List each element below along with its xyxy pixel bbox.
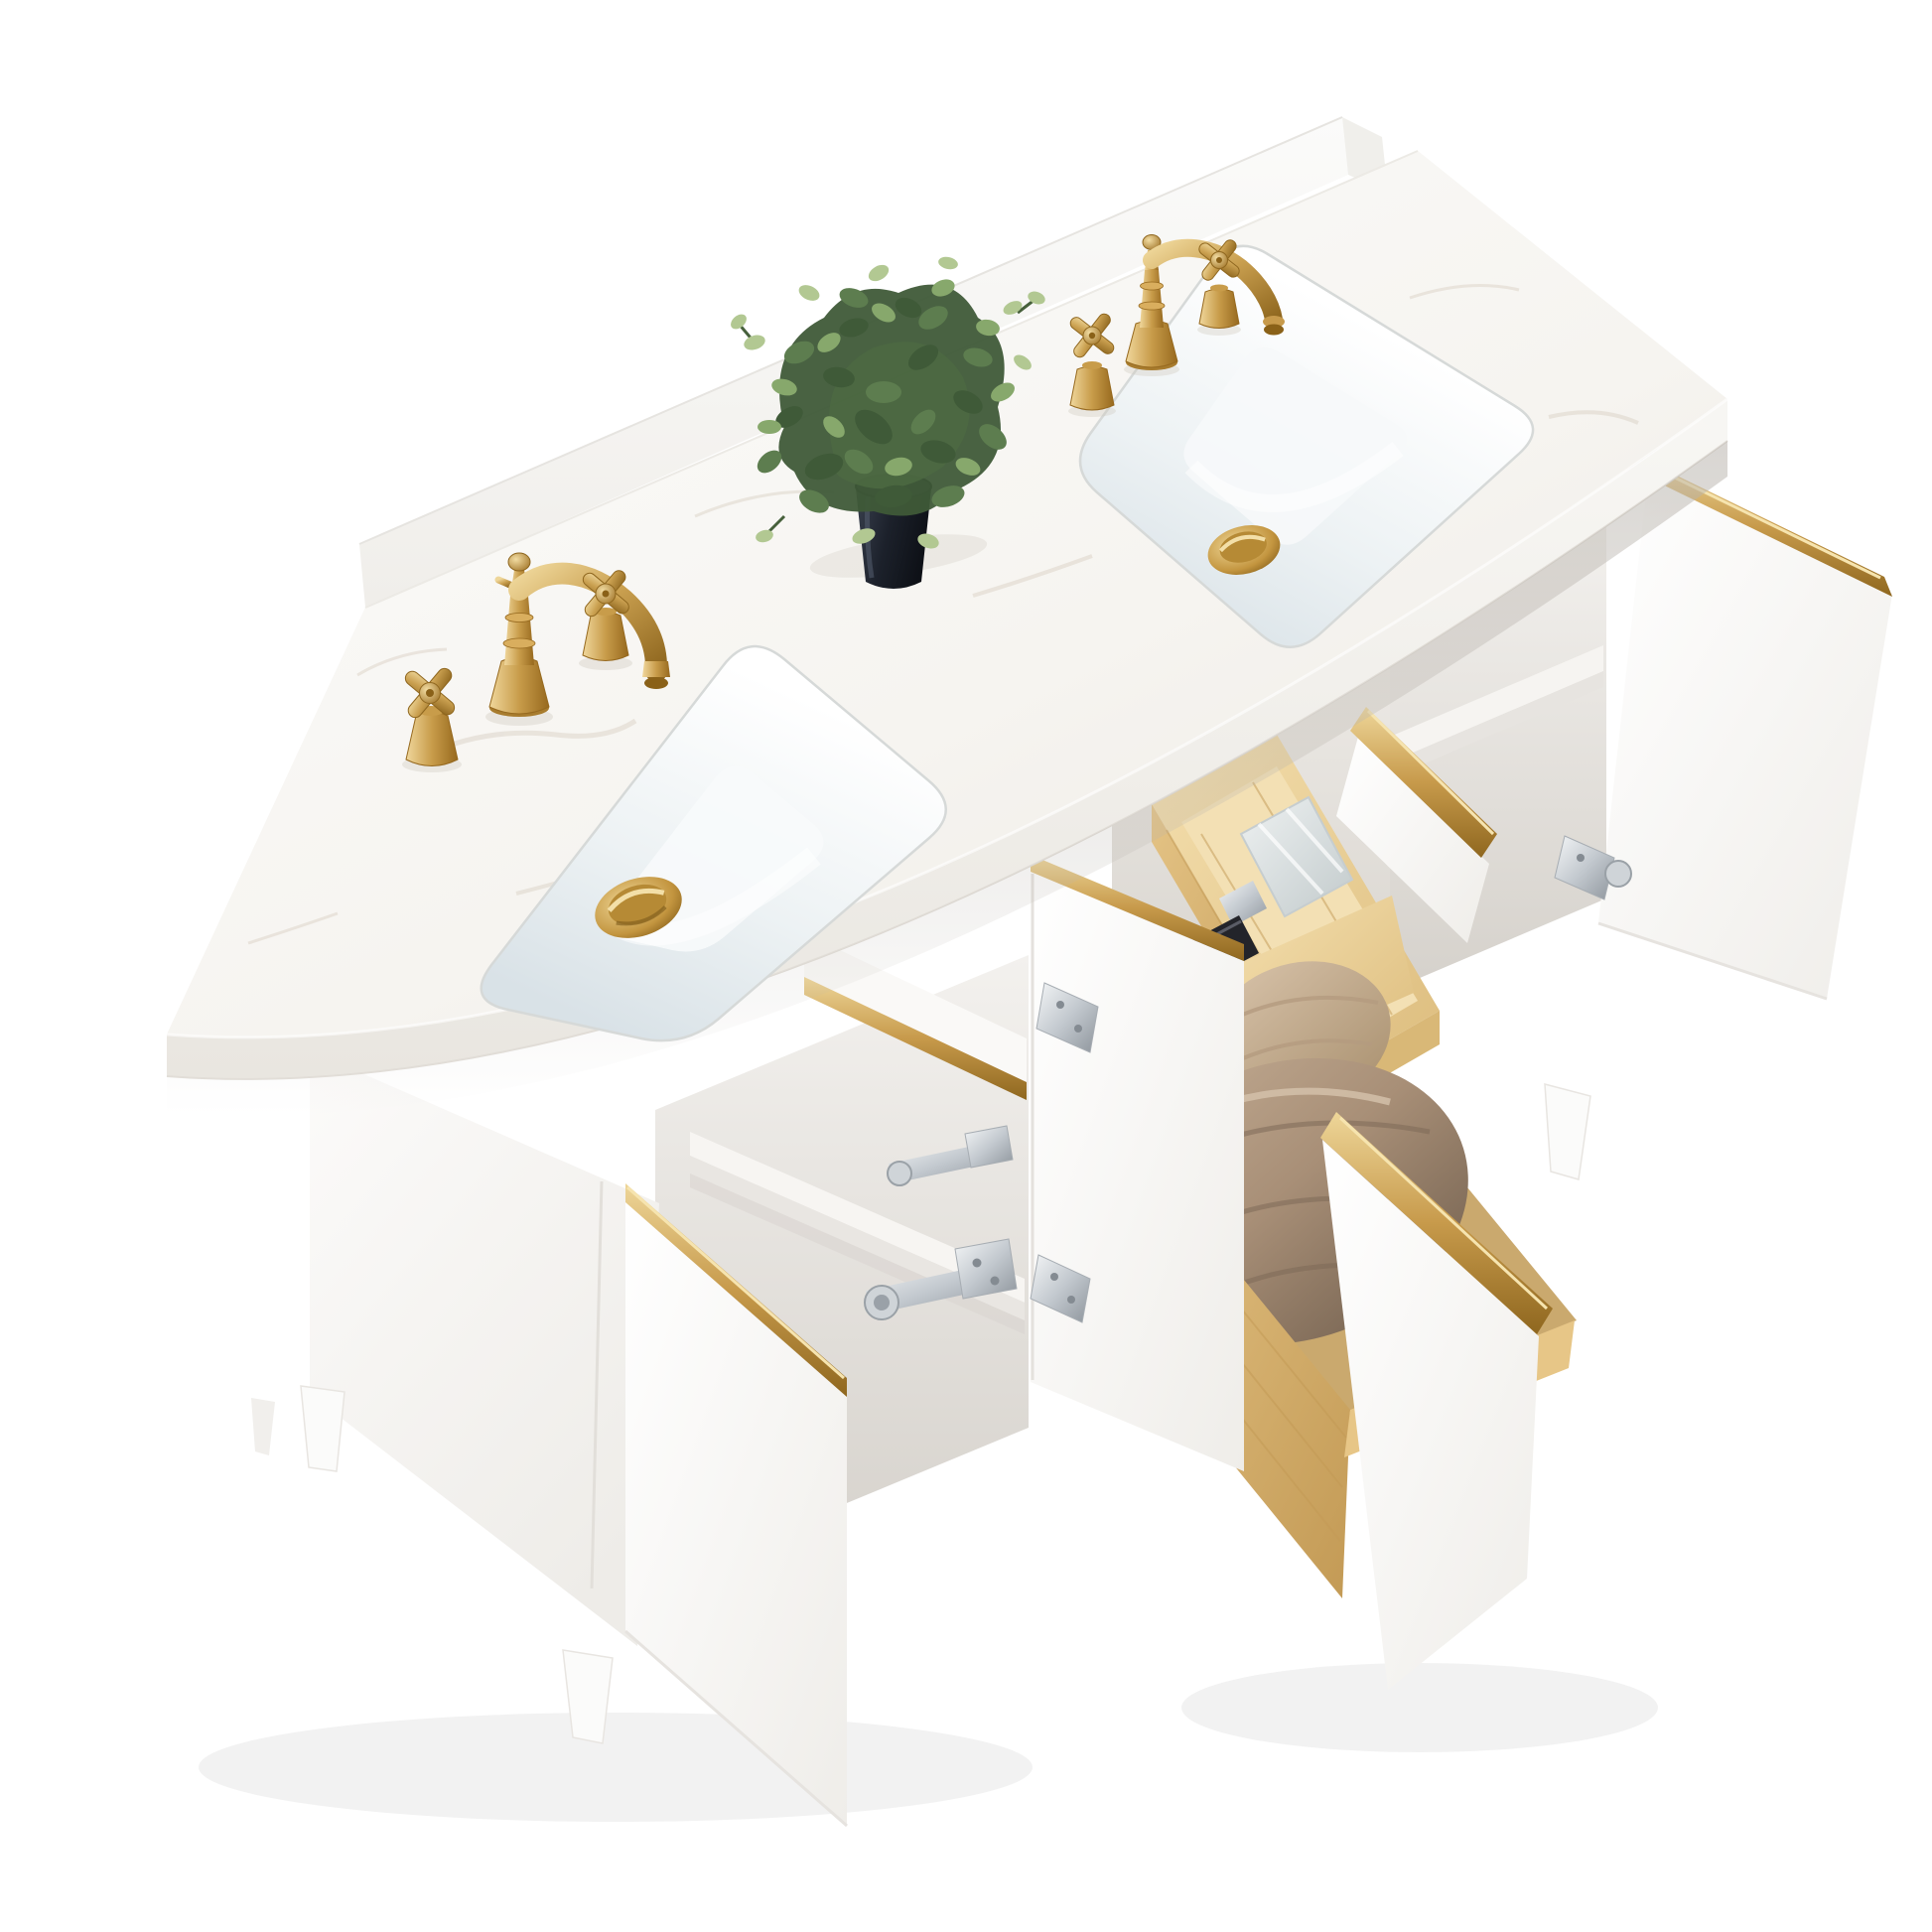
door-face (1031, 872, 1244, 1471)
floor-shadow (1181, 1663, 1658, 1752)
leaf (937, 255, 959, 271)
leaf (866, 261, 892, 284)
screw (973, 1259, 982, 1268)
spout-tip (644, 677, 668, 689)
leaf (796, 282, 822, 304)
handle-pin (1216, 257, 1222, 263)
back-left-leg (251, 1398, 275, 1455)
hinge-cup-center (874, 1295, 890, 1311)
screw (1056, 1001, 1064, 1009)
right-leg (1545, 1084, 1590, 1179)
hinge-cup (888, 1162, 911, 1185)
center-open-door (1031, 855, 1244, 1471)
front-left-leg (301, 1386, 345, 1471)
hinge-plate (965, 1126, 1013, 1168)
spout-top-knob (508, 553, 530, 571)
spout-knuckle (505, 614, 533, 622)
leaf (758, 420, 781, 434)
screw (991, 1277, 1000, 1286)
vanity-product-photo (0, 0, 1932, 1932)
floor-shadow (199, 1713, 1033, 1822)
handle-neck (1082, 361, 1102, 369)
handle-neck (1210, 285, 1228, 292)
spout-knuckle (503, 638, 535, 648)
hinge-cup (1605, 861, 1631, 887)
leaf (866, 381, 901, 403)
cabinet-left-face (310, 1050, 659, 1646)
spout-knuckle (1139, 302, 1165, 310)
spout-knuckle (1141, 282, 1164, 290)
screw (1050, 1273, 1058, 1281)
handle-base (583, 613, 628, 661)
spout-tip (1264, 325, 1284, 336)
handle-base (1070, 366, 1114, 410)
screw (1577, 854, 1585, 862)
leaf (728, 312, 750, 333)
floor-shadows (199, 1663, 1658, 1822)
spout-collar (642, 661, 670, 677)
handle-pin (1089, 333, 1095, 339)
handle-pin (603, 591, 610, 598)
leaf (742, 333, 766, 352)
handle-pin (426, 689, 434, 697)
screw (1067, 1296, 1075, 1304)
screw (1074, 1025, 1082, 1033)
hinge-plate (955, 1239, 1017, 1299)
door-face (1598, 475, 1892, 999)
handle-base (1199, 289, 1239, 329)
